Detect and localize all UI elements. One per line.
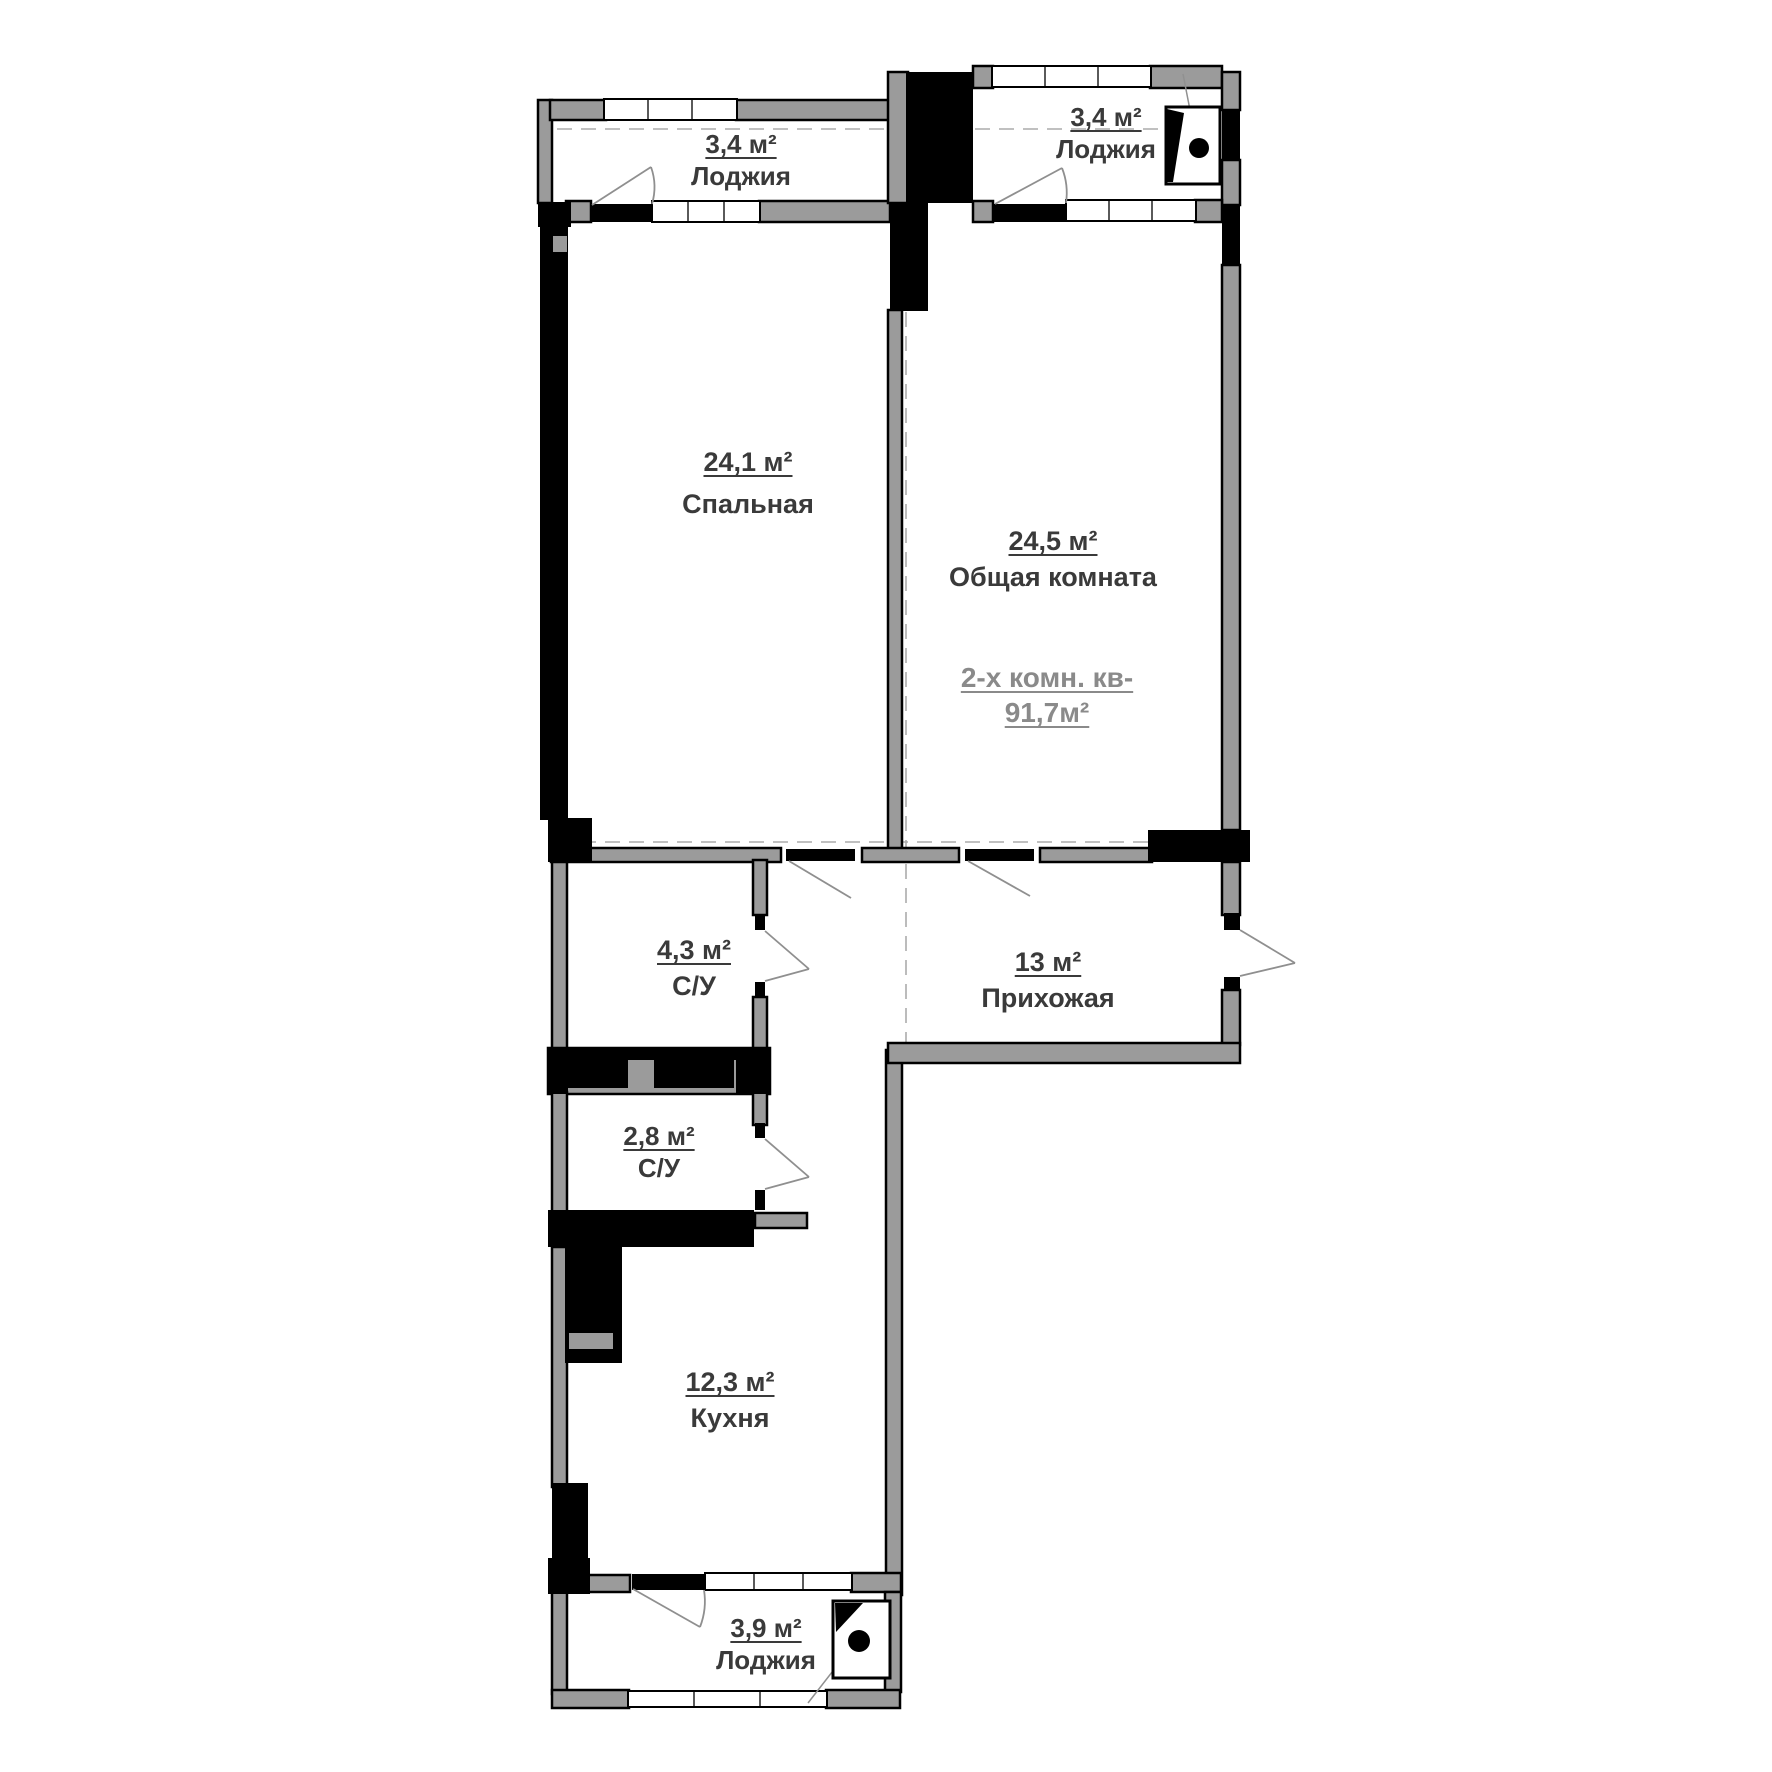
room-area: 12,3 м² xyxy=(685,1364,774,1400)
room-name: Кухня xyxy=(685,1400,774,1436)
window-loggia-tl-outer xyxy=(604,99,737,120)
window-bedroom-loggia xyxy=(652,201,760,222)
door-living xyxy=(965,849,1034,861)
room-area: 3,9 м² xyxy=(716,1612,816,1644)
floor-plan-drawing xyxy=(0,0,1772,1772)
room-area: 4,3 м² xyxy=(657,932,731,968)
door-living-loggia xyxy=(993,204,1066,222)
room-label-bedroom: 24,1 м² Спальная xyxy=(682,441,814,525)
room-name: С/У xyxy=(623,1152,694,1184)
room-name: Лоджия xyxy=(1056,133,1156,165)
door-bedroom xyxy=(786,849,855,861)
window-kitchen-loggia xyxy=(705,1573,852,1590)
room-label-living: 24,5 м² Общая комната xyxy=(949,523,1157,595)
room-label-bath-bottom: 2,8 м² С/У xyxy=(623,1120,694,1184)
door-kitchen-loggia xyxy=(632,1574,705,1590)
room-area: 13 м² xyxy=(981,944,1114,980)
door-bedroom-loggia xyxy=(591,204,652,222)
apartment-total-area: 91,7м² xyxy=(961,695,1133,730)
room-name: Лоджия xyxy=(716,1644,816,1676)
apartment-type: 2-х комн. кв- xyxy=(961,660,1133,695)
room-name: Лоджия xyxy=(691,160,791,192)
room-label-loggia-top-left: 3,4 м² Лоджия xyxy=(691,128,791,192)
room-name: Прихожая xyxy=(981,980,1114,1016)
room-area: 3,4 м² xyxy=(691,128,791,160)
room-name: С/У xyxy=(657,968,731,1004)
wall-block-hall-corner xyxy=(1148,830,1250,862)
appliance-drum-icon xyxy=(848,1630,870,1652)
room-label-loggia-top-right: 3,4 м² Лоджия xyxy=(1056,101,1156,165)
room-area: 2,8 м² xyxy=(623,1120,694,1152)
room-area: 3,4 м² xyxy=(1056,101,1156,133)
room-area: 24,1 м² xyxy=(682,441,814,483)
apartment-summary-label: 2-х комн. кв- 91,7м² xyxy=(961,660,1133,730)
room-area: 24,5 м² xyxy=(949,523,1157,559)
floor-plan-page: 3,4 м² Лоджия 3,4 м² Лоджия 24,1 м² Спал… xyxy=(0,0,1772,1772)
room-label-loggia-bottom: 3,9 м² Лоджия xyxy=(716,1612,816,1676)
room-label-kitchen: 12,3 м² Кухня xyxy=(685,1364,774,1436)
room-name: Спальная xyxy=(682,483,814,525)
window-loggia-bottom-outer xyxy=(628,1691,827,1707)
window-loggia-tr-outer xyxy=(992,66,1151,87)
window-living-loggia xyxy=(1066,200,1196,221)
room-label-bath-top: 4,3 м² С/У xyxy=(657,932,731,1004)
appliance-drum-icon xyxy=(1189,138,1209,158)
room-label-hallway: 13 м² Прихожая xyxy=(981,944,1114,1016)
room-name: Общая комната xyxy=(949,559,1157,595)
